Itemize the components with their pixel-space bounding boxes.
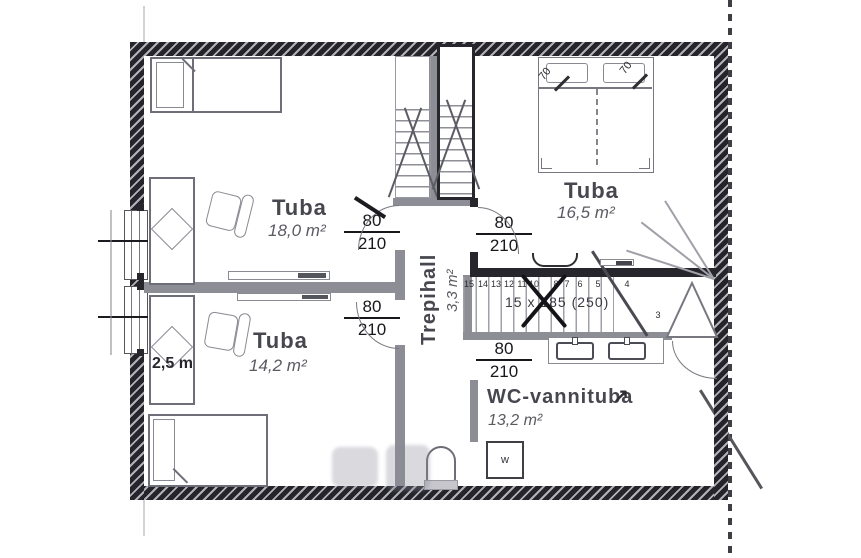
washing-machine: w (486, 441, 524, 479)
room-area-wc: 13,2 m² (488, 412, 542, 430)
door-width: 80 (474, 339, 534, 358)
stair-flight-left-treads (396, 109, 430, 197)
room-area-tuba-16: 16,5 m² (557, 203, 615, 223)
washing-machine-label: w (501, 454, 509, 466)
sink-1-tap (572, 337, 578, 345)
room-label-tuba-14: Tuba (253, 328, 308, 354)
shelf-bedroom1-dark-block (298, 273, 326, 278)
stair-tread-number: 3 (652, 310, 664, 320)
bed-double-center-line (596, 89, 598, 169)
window-2-glass-line (131, 287, 132, 353)
window-1 (124, 210, 148, 280)
bed-double-corner-tick-left (541, 158, 552, 169)
stair-flight-right (437, 44, 475, 200)
stair-tread-number: 4 (621, 279, 633, 289)
direction-arrow-icon: ↗ (613, 385, 629, 408)
dimension-rule (476, 359, 532, 361)
room-area-trepihall: 3,3 m² (444, 232, 461, 312)
watermark (386, 445, 430, 491)
shelf-bedroom3-dark-block (302, 295, 328, 299)
window-1-glass-line2 (139, 211, 140, 279)
window-1-sill-tick (98, 240, 148, 242)
stair-tread-number: 5 (592, 279, 604, 289)
floor-plan: 15 14 13 12 11 10 8 7 6 5 4 3 15 x 185 (… (0, 0, 861, 558)
window-1-jamb-top (137, 204, 144, 211)
window-1-jamb-bottom (137, 273, 144, 280)
construction-line-top (143, 6, 145, 42)
window-2 (124, 286, 148, 354)
construction-line-bottom (143, 500, 145, 536)
stair-tread-number: 12 (503, 279, 515, 289)
bed-single-top-blanket-line (192, 57, 194, 113)
room-area-tuba-14: 14,2 m² (249, 356, 307, 376)
wall-bedroom2-south (470, 268, 716, 277)
room-label-tuba-18: Tuba (272, 195, 327, 221)
stair-dimension-annotation: 15 x 185 (250) (505, 294, 609, 310)
bed-double-corner-tick-right (639, 158, 650, 169)
chair-2 (196, 302, 255, 364)
shower-triangle (664, 280, 720, 340)
stair-tread-number: 13 (490, 279, 502, 289)
door-arc-bedroom3 (356, 302, 399, 349)
bed-double (538, 57, 654, 173)
room-label-wc: WC-vannituba (487, 386, 633, 409)
length-annotation: 2,5 m (152, 355, 193, 373)
stair-tread-number: 15 (463, 279, 475, 289)
stair-flight-left (395, 56, 431, 198)
window-1-glass-line (131, 211, 132, 279)
outer-wall-top (130, 42, 728, 56)
watermark (332, 447, 378, 487)
window-2-sill-tick (98, 316, 148, 318)
bed-single-bottom-pillow (153, 419, 175, 481)
window-2-jamb-bottom (137, 349, 144, 356)
stair-tread-number: 6 (574, 279, 586, 289)
room-label-tuba-16: Tuba (564, 178, 619, 204)
room-area-tuba-18: 18,0 m² (268, 221, 326, 241)
door-dimension-label-4: 80 210 (474, 339, 534, 381)
chair-1 (196, 181, 258, 247)
shelf-bedroom2-dark-block (616, 261, 632, 265)
room-label-trepihall: Trepihall (418, 213, 441, 345)
window-2-jamb-top (137, 283, 144, 290)
toilet-bowl (426, 446, 456, 484)
bench-bedroom2 (532, 253, 578, 267)
bed-single-top-pillow (156, 62, 184, 108)
wall-bathroom-partial (470, 380, 478, 442)
outer-wall-right (714, 42, 728, 500)
window-2-glass-line2 (139, 287, 140, 353)
wall-corridor-west-upper (395, 250, 405, 300)
sink-2-tap (624, 337, 630, 345)
door-height: 210 (474, 362, 534, 381)
door-arc-bathroom (672, 341, 717, 379)
window-outer-sill-line (110, 210, 112, 355)
stair-tread-number: 14 (477, 279, 489, 289)
roof-eaves-dashed-line (728, 0, 732, 558)
